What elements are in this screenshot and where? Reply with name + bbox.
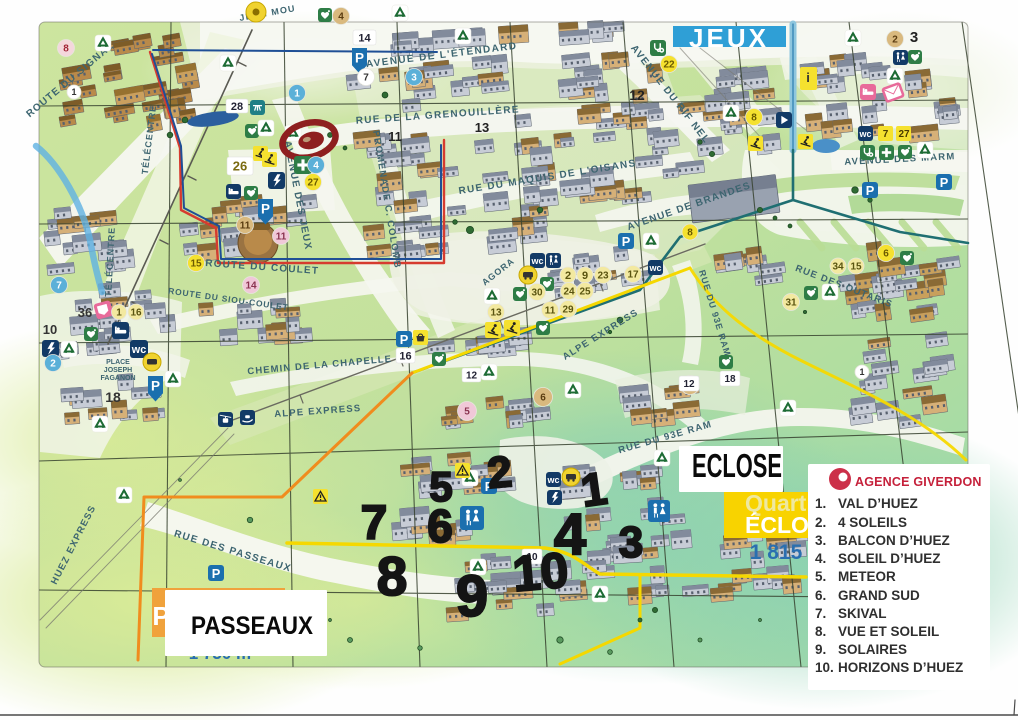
svg-text:10.: 10. [815,660,834,675]
svg-text:13: 13 [475,120,489,135]
svg-text:15: 15 [190,259,202,270]
svg-text:wc: wc [648,263,661,273]
svg-text:i: i [806,70,810,85]
svg-text:27: 27 [898,129,910,140]
svg-text:12: 12 [466,371,478,382]
svg-text:4.: 4. [815,551,826,566]
svg-text:2: 2 [892,35,898,46]
svg-text:10: 10 [510,542,570,603]
svg-text:BALCON D’HUEZ: BALCON D’HUEZ [838,533,950,548]
svg-text:11: 11 [240,221,251,232]
svg-text:P: P [400,332,409,347]
svg-text:wc: wc [858,129,871,139]
svg-text:2.: 2. [815,515,826,530]
svg-text:9: 9 [582,270,588,282]
svg-text:3: 3 [619,518,643,567]
svg-text:1: 1 [71,87,76,97]
svg-text:34: 34 [832,262,844,273]
svg-text:PASSEAUX: PASSEAUX [191,612,313,640]
svg-text:18: 18 [105,389,121,405]
svg-text:1.: 1. [815,496,826,511]
svg-text:PLACE: PLACE [106,359,130,366]
svg-text:6: 6 [540,393,546,404]
svg-text:8: 8 [377,545,408,607]
svg-text:SOLAIRES: SOLAIRES [838,642,907,657]
svg-text:7: 7 [56,281,62,292]
svg-text:8: 8 [687,228,693,239]
svg-text:3: 3 [910,29,918,46]
svg-text:13: 13 [490,308,502,319]
svg-text:5: 5 [464,407,470,418]
svg-text:P: P [866,183,875,198]
svg-text:7: 7 [363,73,369,84]
svg-text:18: 18 [724,374,736,385]
svg-text:2: 2 [485,447,514,498]
svg-text:3.: 3. [815,533,826,548]
svg-text:2: 2 [50,359,56,370]
svg-text:11: 11 [276,232,287,243]
svg-text:ECLOSE: ECLOSE [692,447,782,484]
svg-text:P: P [940,175,949,190]
svg-text:wc: wc [131,344,146,356]
svg-text:GRAND SUD: GRAND SUD [838,588,920,603]
svg-text:4: 4 [313,161,319,172]
svg-text:P: P [622,234,631,249]
svg-text:2: 2 [565,270,571,282]
svg-text:1: 1 [116,308,122,319]
svg-text:1 815: 1 815 [750,541,803,564]
svg-text:11: 11 [388,129,402,144]
svg-text:8: 8 [751,113,757,124]
svg-text:15: 15 [850,262,862,273]
svg-text:1: 1 [859,367,864,377]
svg-text:28: 28 [231,101,243,113]
svg-text:27: 27 [307,178,319,189]
svg-text:HORIZONS D’HUEZ: HORIZONS D’HUEZ [838,660,963,675]
svg-text:7.: 7. [815,606,826,621]
svg-text:10: 10 [43,322,57,337]
svg-text:9: 9 [456,564,488,629]
svg-text:11: 11 [545,306,556,317]
svg-text:31: 31 [785,298,797,309]
svg-text:6: 6 [427,500,453,552]
svg-text:7: 7 [361,497,388,550]
svg-text:5.: 5. [815,569,826,584]
svg-text:30: 30 [531,288,543,299]
svg-text:P: P [151,378,160,393]
svg-text:25: 25 [579,287,591,298]
svg-text:17: 17 [627,270,639,281]
svg-text:VAL D’HUEZ: VAL D’HUEZ [838,496,918,511]
svg-text:METEOR: METEOR [838,569,896,584]
svg-text:JOSEPH: JOSEPH [104,367,132,374]
svg-text:6: 6 [883,249,889,260]
svg-text:22: 22 [663,60,675,71]
svg-text:P: P [212,566,221,581]
svg-text:SOLEIL D’HUEZ: SOLEIL D’HUEZ [838,551,941,566]
svg-text:4: 4 [338,12,344,23]
svg-text:12: 12 [629,87,645,103]
svg-text:14: 14 [245,281,257,292]
svg-text:16: 16 [399,350,411,362]
svg-text:P: P [261,201,270,216]
svg-text:7: 7 [883,129,889,140]
svg-text:12: 12 [683,379,695,390]
svg-text:P: P [355,50,364,65]
svg-text:16: 16 [130,308,142,319]
svg-text:FAGANON: FAGANON [101,375,136,382]
svg-text:VUE ET SOLEIL: VUE ET SOLEIL [838,624,939,639]
svg-text:26: 26 [233,159,247,174]
svg-text:3: 3 [411,73,417,84]
svg-text:4 SOLEILS: 4 SOLEILS [838,515,907,530]
svg-text:AGENCE GIVERDON: AGENCE GIVERDON [855,475,982,489]
svg-text:36: 36 [78,305,92,320]
svg-text:8: 8 [63,44,69,55]
svg-text:1: 1 [294,89,300,100]
svg-text:wc: wc [530,256,543,266]
svg-text:wc: wc [546,475,559,485]
svg-text:24: 24 [563,287,575,298]
svg-text:14: 14 [358,32,371,44]
svg-text:SKIVAL: SKIVAL [838,606,887,621]
svg-text:8.: 8. [815,624,826,639]
svg-text:23: 23 [597,271,609,282]
svg-text:6.: 6. [815,588,826,603]
svg-text:29: 29 [562,305,574,316]
svg-text:9.: 9. [815,642,826,657]
